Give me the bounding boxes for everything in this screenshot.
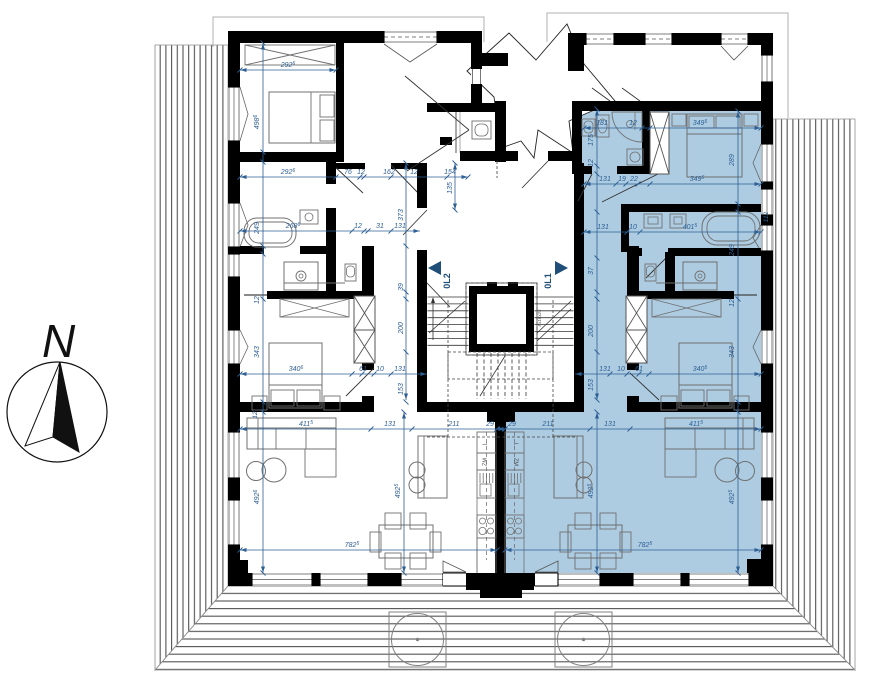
- svg-text:153: 153: [398, 383, 405, 395]
- svg-text:112: 112: [763, 211, 770, 222]
- svg-text:61: 61: [635, 366, 643, 373]
- svg-text:131: 131: [384, 421, 396, 428]
- svg-text:131: 131: [604, 421, 616, 428]
- svg-text:37: 37: [588, 266, 595, 275]
- svg-text:29: 29: [507, 421, 516, 428]
- svg-text:12: 12: [357, 169, 365, 176]
- svg-text:131: 131: [394, 366, 406, 373]
- svg-text:153: 153: [588, 379, 595, 391]
- svg-text:211: 211: [447, 421, 459, 428]
- svg-text:154: 154: [444, 169, 456, 176]
- svg-text:L: L: [483, 442, 489, 445]
- svg-text:12: 12: [410, 169, 418, 176]
- svg-text:ZM: ZM: [483, 458, 489, 466]
- svg-text:8x18x25: 8x18x25: [537, 309, 542, 327]
- svg-text:12: 12: [588, 159, 595, 167]
- svg-text:L: L: [513, 442, 519, 445]
- svg-text:12: 12: [252, 411, 259, 419]
- svg-text:131: 131: [394, 223, 406, 230]
- svg-text:131: 131: [599, 176, 611, 183]
- svg-text:12: 12: [254, 296, 261, 304]
- svg-text:249: 249: [729, 244, 736, 257]
- svg-text:289: 289: [729, 154, 736, 167]
- svg-text:0L2: 0L2: [442, 273, 452, 289]
- svg-text:ZM: ZM: [513, 458, 519, 466]
- svg-text:131: 131: [599, 366, 611, 373]
- svg-text:29: 29: [485, 421, 494, 428]
- svg-text:131: 131: [597, 224, 609, 231]
- svg-text:12: 12: [354, 223, 362, 230]
- svg-text:10: 10: [617, 366, 625, 373]
- svg-text:12: 12: [729, 299, 736, 307]
- svg-text:61: 61: [359, 366, 367, 373]
- svg-text:N: N: [42, 315, 76, 367]
- svg-text:249: 249: [254, 222, 261, 235]
- svg-text:12: 12: [629, 120, 637, 127]
- svg-text:200: 200: [588, 325, 595, 338]
- svg-text:39: 39: [398, 283, 405, 291]
- svg-text:373: 373: [398, 209, 405, 221]
- svg-text:343: 343: [254, 346, 261, 358]
- svg-text:181: 181: [596, 120, 608, 127]
- svg-text:22: 22: [629, 176, 638, 183]
- svg-text:31: 31: [376, 223, 384, 230]
- svg-text:175: 175: [588, 134, 595, 146]
- svg-text:211: 211: [541, 421, 553, 428]
- svg-text:343: 343: [729, 346, 736, 358]
- svg-text:162: 162: [383, 169, 395, 176]
- svg-text:19: 19: [618, 176, 626, 183]
- svg-text:200: 200: [398, 322, 405, 335]
- svg-text:10: 10: [629, 224, 637, 231]
- svg-text:135: 135: [447, 182, 454, 194]
- svg-text:76: 76: [344, 169, 352, 176]
- svg-text:0L1: 0L1: [543, 273, 553, 289]
- svg-text:10: 10: [376, 366, 384, 373]
